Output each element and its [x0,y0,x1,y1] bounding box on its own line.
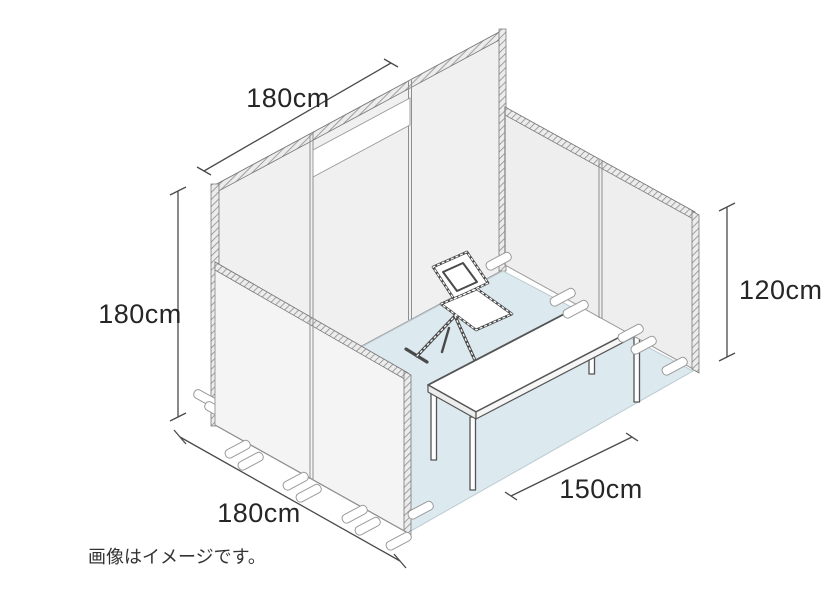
dimension-right-height [719,203,735,361]
booth-diagram-canvas: 180cm 180cm 180cm 120cm 150cm 画像はイメージです。 [0,0,840,616]
image-disclaimer-caption: 画像はイメージです。 [88,547,266,567]
label-side-width: 180cm [217,498,301,528]
right-wall-front-post [692,211,699,373]
label-table-length: 150cm [559,474,643,504]
label-wall-height: 180cm [98,299,182,329]
label-right-height: 120cm [739,275,823,305]
label-back-width: 180cm [246,83,330,113]
booth-diagram: 180cm 180cm 180cm 120cm 150cm 画像はイメージです。 [0,0,840,616]
